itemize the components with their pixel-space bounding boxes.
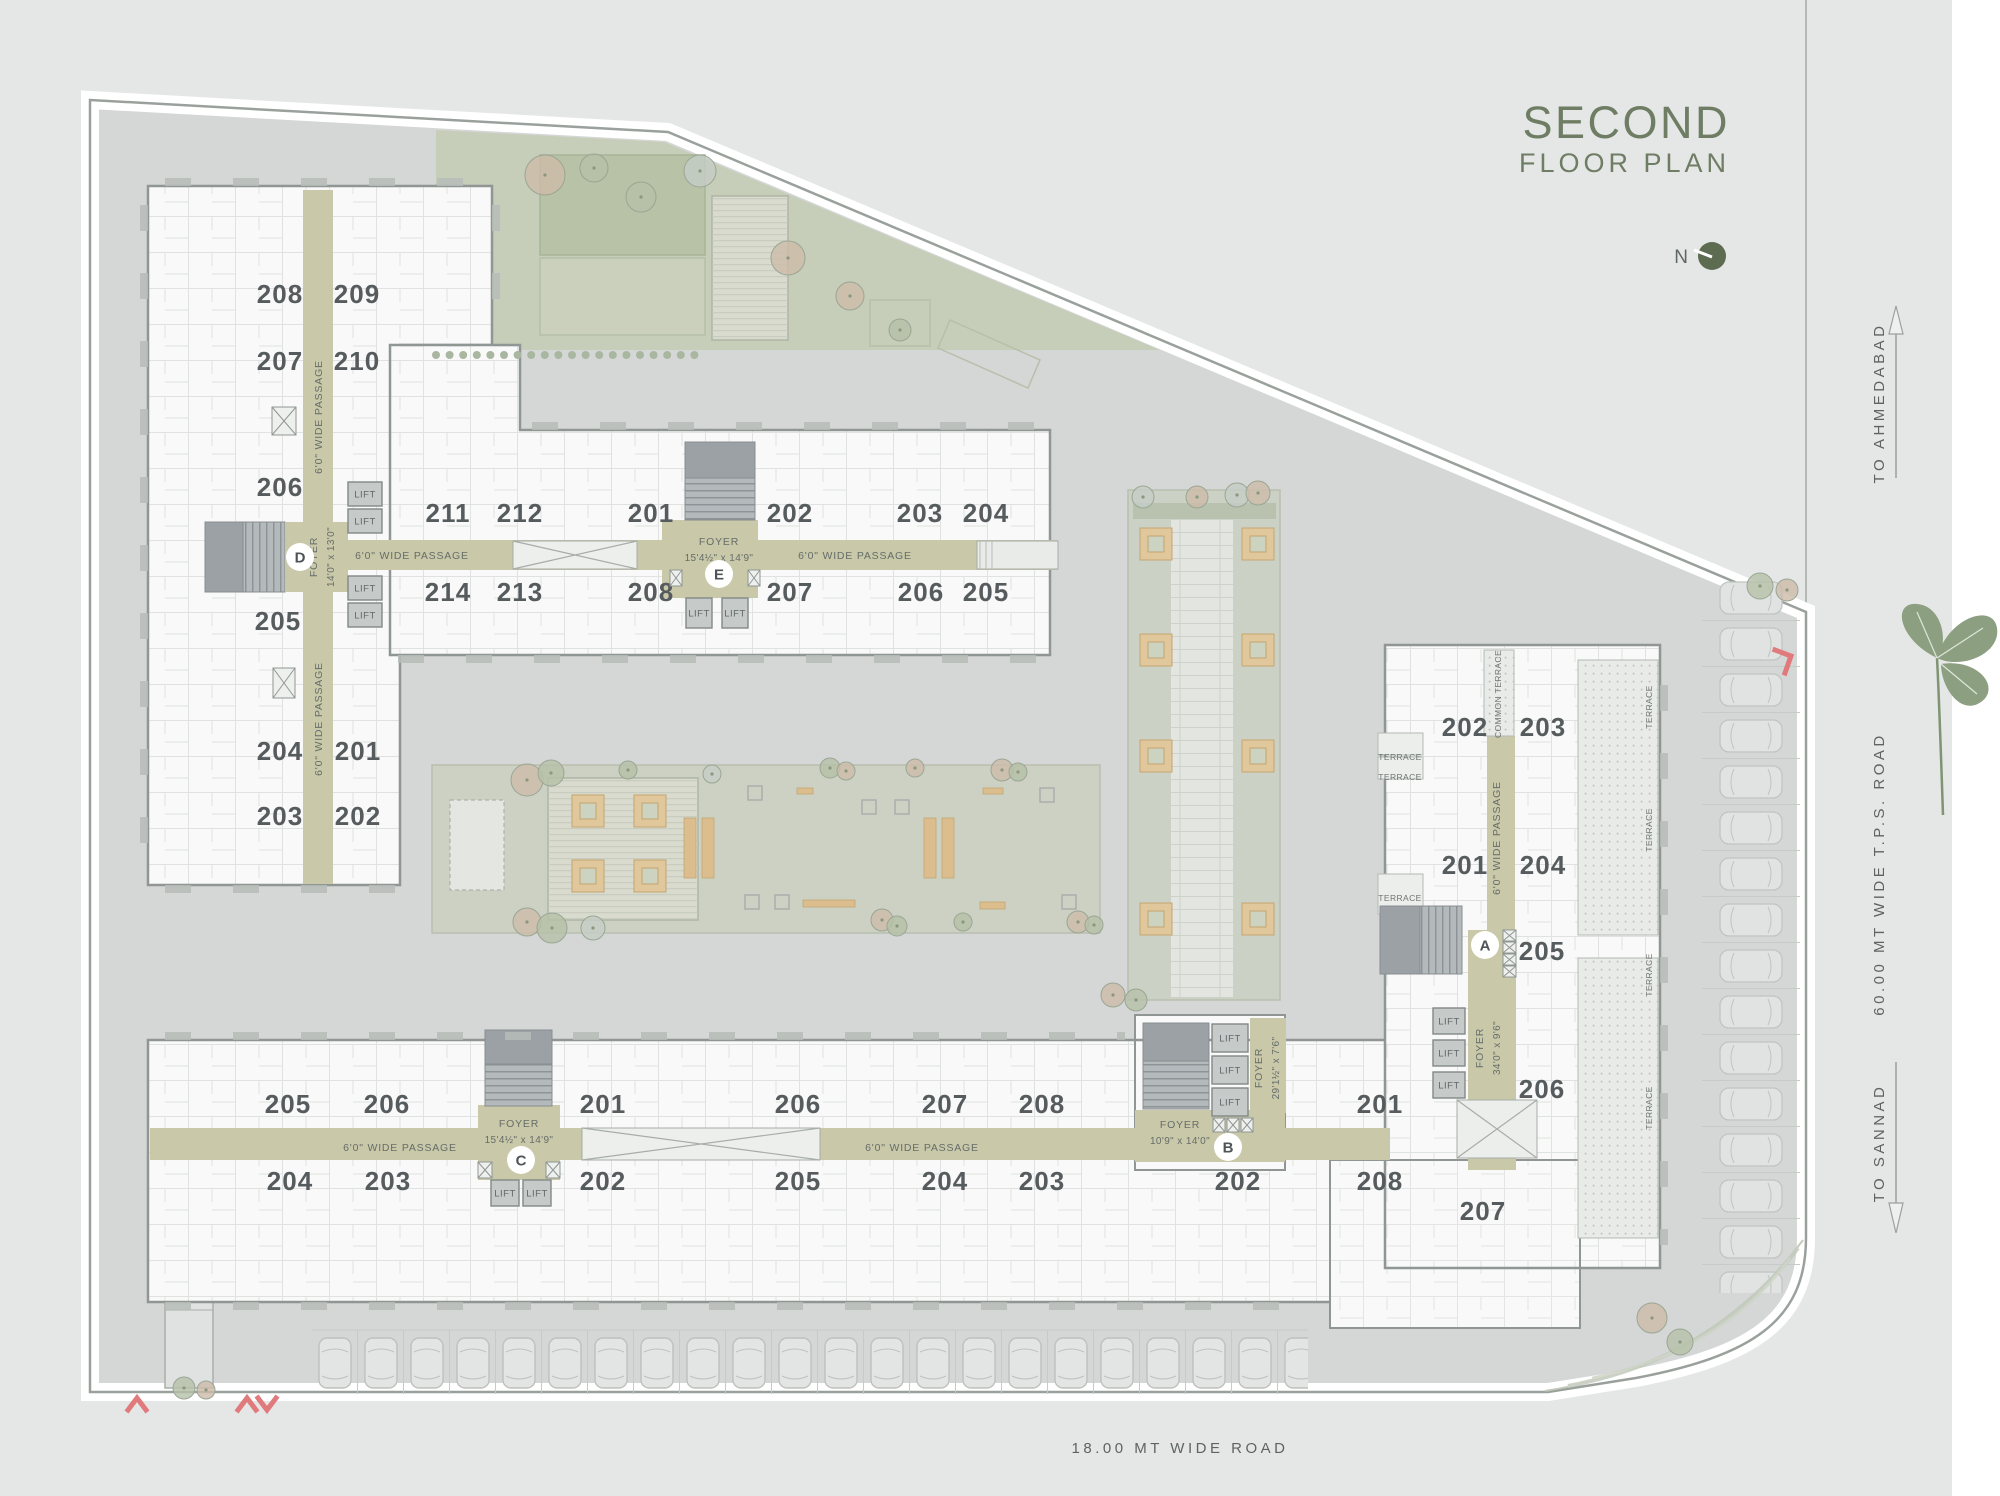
shrub xyxy=(446,351,454,359)
unit-label: 201 xyxy=(1442,850,1488,880)
shrub xyxy=(514,351,522,359)
passage-label: 6'0" WIDE PASSAGE xyxy=(313,360,325,474)
unit-label: 208 xyxy=(1019,1089,1065,1119)
unit-label: 205 xyxy=(265,1089,311,1119)
foyer-size-label: 29'1½" x 7'6" xyxy=(1271,1037,1282,1100)
road-label-to-sannad: TO SANNAD xyxy=(1871,1084,1888,1203)
tree-center xyxy=(898,328,901,331)
passage-label: 6'0" WIDE PASSAGE xyxy=(865,1142,979,1154)
lawn-court-2 xyxy=(540,258,705,335)
floor-plan-canvas: 2082092072102062052042012032022112122012… xyxy=(0,0,2000,1496)
road-label-to-ahmedabad: TO AHMEDABAD xyxy=(1871,323,1888,484)
terrace-label: TERRACE xyxy=(1378,893,1421,903)
bench xyxy=(983,788,1003,794)
tree-center xyxy=(1650,1316,1653,1319)
shrub xyxy=(568,351,576,359)
tree-center xyxy=(710,772,713,775)
unit-label: 202 xyxy=(580,1166,626,1196)
tree-center xyxy=(550,926,553,929)
pergola-center xyxy=(1148,748,1164,764)
unit-label: 208 xyxy=(257,279,303,309)
bottom-parking-row xyxy=(312,1330,1308,1394)
tree-center xyxy=(961,920,964,923)
lift-label: LIFT xyxy=(1219,1034,1241,1045)
pergola-center xyxy=(580,868,596,884)
passage-label: 6'0" WIDE PASSAGE xyxy=(343,1142,457,1154)
unit-label: 204 xyxy=(267,1166,313,1196)
terrace-label: TERRACE xyxy=(1644,953,1654,996)
bench xyxy=(797,788,813,794)
tree-center xyxy=(828,766,831,769)
unit-label: 212 xyxy=(497,498,543,528)
block-marker-letter: E xyxy=(714,567,724,584)
tree-center xyxy=(913,766,916,769)
terrace-label: TERRACE xyxy=(1378,772,1421,782)
unit-label: 207 xyxy=(257,346,303,376)
unit-label: 203 xyxy=(1520,712,1566,742)
right-page-margin xyxy=(1952,0,2000,1496)
shrub xyxy=(459,351,467,359)
bench xyxy=(702,818,714,878)
pergola-center xyxy=(642,803,658,819)
tree-center xyxy=(1076,920,1079,923)
unit-label: 208 xyxy=(628,577,674,607)
unit-label: 206 xyxy=(775,1089,821,1119)
unit-label: 209 xyxy=(334,279,380,309)
unit-label: 206 xyxy=(257,472,303,502)
shrub xyxy=(432,351,440,359)
unit-label: 202 xyxy=(335,801,381,831)
tree-center xyxy=(1235,493,1238,496)
tree-center xyxy=(1785,588,1788,591)
tree-center xyxy=(786,256,789,259)
unit-label: 207 xyxy=(922,1089,968,1119)
road-label-tps-road: 60.00 MT WIDE T.P.S. ROAD xyxy=(1871,732,1888,1015)
unit-label: 202 xyxy=(1442,712,1488,742)
lift-label: LIFT xyxy=(1438,1081,1460,1092)
tree-center xyxy=(592,166,595,169)
foyer-size-label: 10'9" x 14'0" xyxy=(1150,1136,1210,1147)
unit-label: 204 xyxy=(257,736,303,766)
unit-label: 201 xyxy=(628,498,674,528)
tree-center xyxy=(1195,495,1198,498)
block-marker-letter: A xyxy=(1480,938,1491,955)
pergola-center xyxy=(1250,748,1266,764)
shrub xyxy=(677,351,685,359)
terrace-label: TERRACE xyxy=(1644,808,1654,851)
lift-label: LIFT xyxy=(354,490,376,501)
unit-label: 201 xyxy=(1357,1089,1403,1119)
bench xyxy=(924,818,936,878)
tree-center xyxy=(1141,495,1144,498)
pergola-center xyxy=(1148,536,1164,552)
unit-label: 206 xyxy=(898,577,944,607)
unit-label: 203 xyxy=(257,801,303,831)
pergola-center xyxy=(580,803,596,819)
block-marker-letter: D xyxy=(295,550,306,567)
shrub xyxy=(541,351,549,359)
terrace-label: TERRACE xyxy=(1644,1086,1654,1129)
tree-center xyxy=(591,926,594,929)
shrub xyxy=(663,351,671,359)
tree-center xyxy=(204,1388,207,1391)
unit-label: 207 xyxy=(767,577,813,607)
unit-label: 203 xyxy=(365,1166,411,1196)
unit-label: 205 xyxy=(775,1166,821,1196)
block-marker-letter: C xyxy=(516,1153,527,1170)
pergola-center xyxy=(1250,911,1266,927)
north-label: N xyxy=(1674,247,1690,268)
tree-center xyxy=(549,771,552,774)
lift-label: LIFT xyxy=(526,1189,548,1200)
tree-center xyxy=(895,924,898,927)
unit-label: 203 xyxy=(897,498,943,528)
tree-center xyxy=(1092,923,1095,926)
lift-label: LIFT xyxy=(1438,1017,1460,1028)
unit-label: 213 xyxy=(497,577,543,607)
unit-label: 205 xyxy=(1519,936,1565,966)
tree-center xyxy=(543,173,546,176)
unit-label: 207 xyxy=(1460,1196,1506,1226)
shrub xyxy=(636,351,644,359)
unit-label: 201 xyxy=(335,736,381,766)
block-marker-letter: B xyxy=(1223,1140,1234,1157)
foyer-size-label: 14'0" x 13'0" xyxy=(326,527,337,587)
unit-label: 202 xyxy=(767,498,813,528)
terrace-label: TERRACE xyxy=(1378,752,1421,762)
unit-label: 202 xyxy=(1215,1166,1261,1196)
shrub xyxy=(582,351,590,359)
pergola-center xyxy=(1250,536,1266,552)
unit-label: 208 xyxy=(1357,1166,1403,1196)
unit-label: 205 xyxy=(255,606,301,636)
pergola-center xyxy=(1250,642,1266,658)
terrace-label: TERRACE xyxy=(1644,685,1654,728)
tree-center xyxy=(844,769,847,772)
lift-label: LIFT xyxy=(724,609,746,620)
lift-label: LIFT xyxy=(1219,1098,1241,1109)
foyer-label: FOYER xyxy=(1474,1028,1486,1068)
tree-center xyxy=(1016,770,1019,773)
shrub xyxy=(527,351,535,359)
shrub xyxy=(486,351,494,359)
tree-center xyxy=(698,169,701,172)
tree-center xyxy=(848,294,851,297)
unit-label: 204 xyxy=(963,498,1009,528)
foyer-label: FOYER xyxy=(1253,1048,1265,1088)
road-label-bottom: 18.00 MT WIDE ROAD xyxy=(1072,1440,1289,1457)
unit-label: 204 xyxy=(922,1166,968,1196)
shrub xyxy=(500,351,508,359)
unit-label: 204 xyxy=(1520,850,1566,880)
passage-label: 6'0" WIDE PASSAGE xyxy=(355,550,469,562)
unit-label: 206 xyxy=(364,1089,410,1119)
foyer-label: FOYER xyxy=(699,536,739,548)
tree-center xyxy=(525,920,528,923)
pergola-center xyxy=(642,868,658,884)
lift-label: LIFT xyxy=(354,517,376,528)
shrub xyxy=(622,351,630,359)
tree-center xyxy=(182,1386,185,1389)
unit-label: 203 xyxy=(1019,1166,1065,1196)
pergola-center xyxy=(1148,911,1164,927)
tree-center xyxy=(1111,993,1114,996)
bench xyxy=(803,900,855,907)
bench xyxy=(980,902,1005,909)
passage-label: 6'0" WIDE PASSAGE xyxy=(1491,781,1503,895)
passage-label: 6'0" WIDE PASSAGE xyxy=(798,550,912,562)
lift-label: LIFT xyxy=(1219,1066,1241,1077)
shrub xyxy=(595,351,603,359)
lift-label: LIFT xyxy=(1438,1049,1460,1060)
common-terrace-label: COMMON TERRACE xyxy=(1493,650,1503,738)
tree-center xyxy=(1678,1340,1681,1343)
shrub xyxy=(473,351,481,359)
unit-label: 201 xyxy=(580,1089,626,1119)
tree-center xyxy=(525,778,528,781)
lift-label: LIFT xyxy=(354,611,376,622)
bench xyxy=(942,818,954,878)
lift-label: LIFT xyxy=(688,609,710,620)
unit-label: 205 xyxy=(963,577,1009,607)
foyer-label: FOYER xyxy=(499,1118,539,1130)
unit-label: 206 xyxy=(1519,1074,1565,1104)
passage-label: 6'0" WIDE PASSAGE xyxy=(313,662,325,776)
foyer-size-label: 15'4½" x 14'9" xyxy=(485,1135,554,1146)
tree-center xyxy=(626,768,629,771)
shrub xyxy=(609,351,617,359)
unit-label: 214 xyxy=(425,577,471,607)
tree-center xyxy=(1000,768,1003,771)
pavilion xyxy=(450,800,504,890)
page-title-line2: FLOOR PLAN xyxy=(1519,148,1730,178)
tree-center xyxy=(639,195,642,198)
foyer-label: FOYER xyxy=(1160,1119,1200,1131)
tree-center xyxy=(1256,491,1259,494)
bench xyxy=(684,818,696,878)
unit-label: 211 xyxy=(426,498,471,528)
tree-center xyxy=(1134,998,1137,1001)
pergola-center xyxy=(1148,642,1164,658)
tree-center xyxy=(880,918,883,921)
right-parking-row xyxy=(1702,575,1800,1293)
lift-label: LIFT xyxy=(354,584,376,595)
shrub xyxy=(690,351,698,359)
page-title-line1: SECOND xyxy=(1522,97,1730,148)
shrub xyxy=(554,351,562,359)
foyer-size-label: 34'0" x 9'6" xyxy=(1492,1021,1503,1075)
unit-label: 210 xyxy=(334,346,380,376)
lift-label: LIFT xyxy=(494,1189,516,1200)
shrub xyxy=(650,351,658,359)
tree-center xyxy=(1758,584,1761,587)
floor-plan-page: 2082092072102062052042012032022112122012… xyxy=(0,0,2000,1496)
